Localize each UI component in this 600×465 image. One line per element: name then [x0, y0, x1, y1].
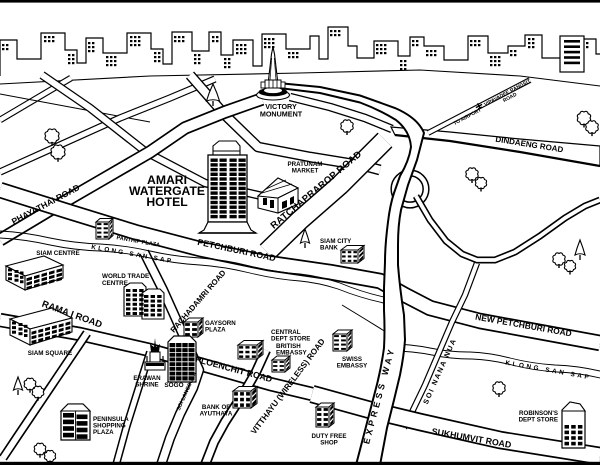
svg-text:ERAWANSHRINE: ERAWANSHRINE [133, 375, 161, 389]
svg-text:PRATUNAMMARKET: PRATUNAMMARKET [288, 161, 323, 175]
svg-text:SOGO: SOGO [164, 382, 183, 389]
svg-text:VICTORYMONUMENT: VICTORYMONUMENT [260, 102, 303, 119]
svg-text:BANK OFAYUTHAYA: BANK OFAYUTHAYA [200, 404, 233, 418]
svg-text:SIAM SQUARE: SIAM SQUARE [28, 350, 72, 357]
svg-text:ROBINSON'SDEPT STORE: ROBINSON'SDEPT STORE [519, 410, 558, 424]
svg-text:SIAM CENTRE: SIAM CENTRE [36, 250, 79, 257]
